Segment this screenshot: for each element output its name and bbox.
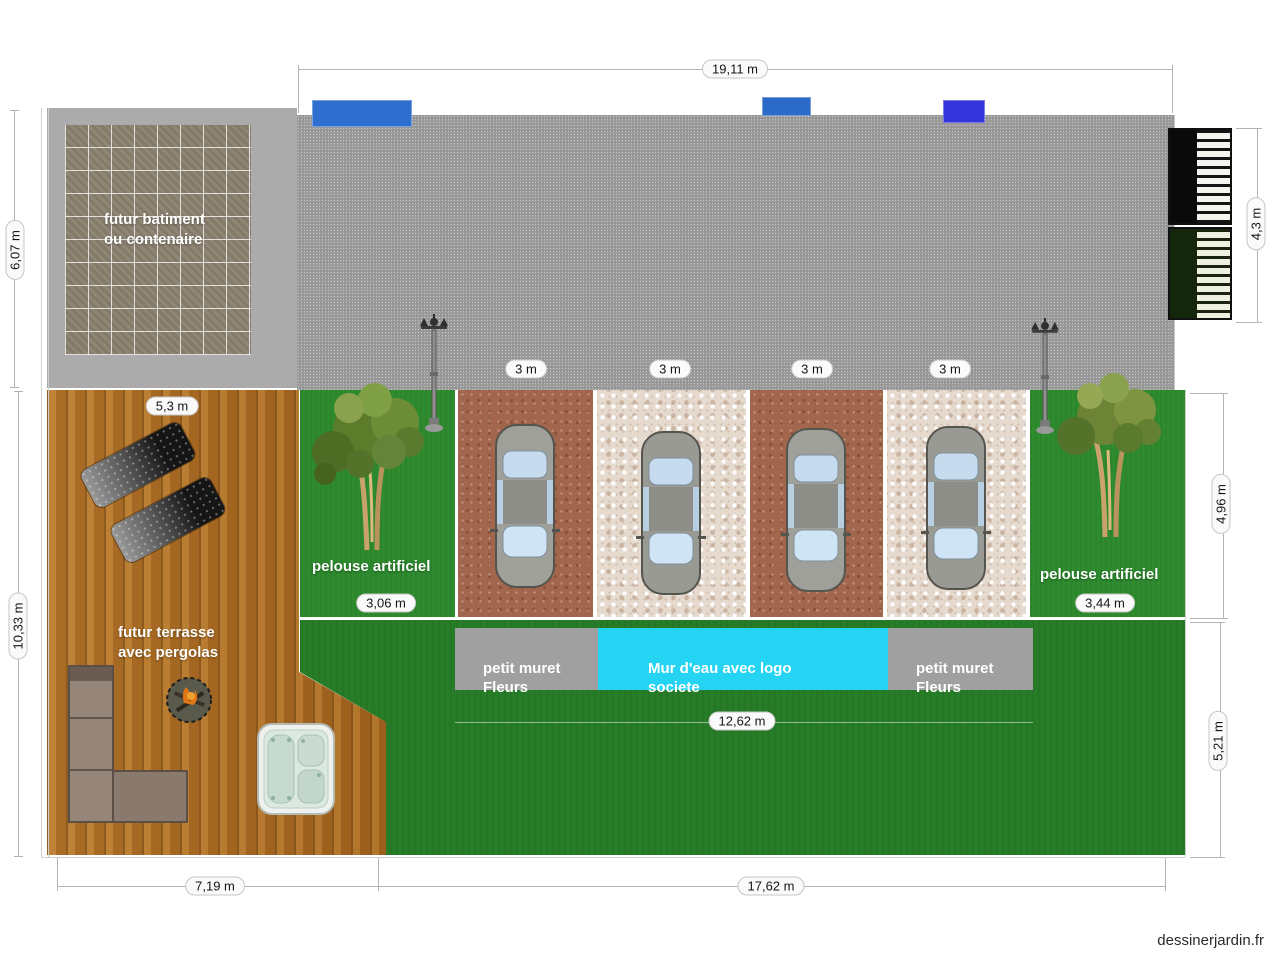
dim-left-upper-height: 6,07 m: [6, 220, 25, 280]
car-4[interactable]: [921, 423, 991, 593]
street-lamp-left[interactable]: [419, 314, 449, 434]
blue-panel-1[interactable]: [312, 100, 412, 127]
dim-left-lower-height: 10,33 m: [9, 593, 28, 660]
dim-spot-2: 3 m: [649, 360, 691, 379]
flower-wall-left-label: petit muret Fleurs: [455, 647, 598, 698]
dim-bottom-left-width: 7,19 m: [185, 877, 245, 896]
flower-wall-left[interactable]: petit muret Fleurs: [455, 628, 598, 690]
sofa-corner-vertical[interactable]: [68, 665, 114, 823]
dim-spot-4: 3 m: [929, 360, 971, 379]
lawn-right-label: pelouse artificiel: [1040, 565, 1158, 585]
dim-lawn-right-width: 3,44 m: [1075, 594, 1135, 613]
sofa-corner-chaise[interactable]: [112, 770, 188, 823]
dim-spot-3: 3 m: [791, 360, 833, 379]
water-wall[interactable]: Mur d'eau avec logo societe: [598, 628, 888, 690]
blue-panel-2[interactable]: [762, 97, 811, 116]
blue-panel-3[interactable]: [943, 100, 985, 123]
gate-upper-slats: [1197, 130, 1230, 223]
gate-upper[interactable]: [1168, 128, 1232, 225]
dim-deck-width: 5,3 m: [146, 397, 199, 416]
street-lamp-right[interactable]: [1030, 318, 1060, 436]
boundary-bottom: [41, 857, 1185, 858]
flower-wall-right-label: petit muret Fleurs: [888, 647, 1033, 698]
fire-pit[interactable]: [164, 675, 214, 725]
dim-parking-depth: 4,96 m: [1212, 474, 1231, 534]
terrace-label: futur terrasse avec pergolas: [118, 623, 218, 662]
boundary-right: [1185, 390, 1186, 857]
car-2[interactable]: [636, 428, 706, 598]
dim-spot-1: 3 m: [505, 360, 547, 379]
flower-wall-right[interactable]: petit muret Fleurs: [888, 628, 1033, 690]
car-1[interactable]: [490, 421, 560, 591]
watermark: dessinerjardin.fr: [1157, 932, 1264, 949]
future-building-label: futur batiment ou contenaire: [104, 210, 205, 249]
gate-upper-panel: [1170, 130, 1197, 223]
gate-lower-panel: [1170, 229, 1197, 318]
hot-tub[interactable]: [257, 723, 335, 815]
lawn-left-label: pelouse artificiel: [312, 557, 430, 577]
boundary-left2: [48, 108, 49, 857]
dim-top-width: 19,11 m: [702, 60, 768, 79]
dim-gate-height: 4,3 m: [1247, 198, 1266, 251]
dim-lawn-depth: 5,21 m: [1209, 711, 1228, 771]
tree-right[interactable]: [1050, 372, 1175, 542]
dim-bottom-right-width: 17,62 m: [738, 877, 805, 896]
car-3[interactable]: [781, 425, 851, 595]
dim-lawn-left-width: 3,06 m: [356, 594, 416, 613]
gate-lower-slats: [1197, 229, 1230, 318]
deck-seam-line: [0, 0, 251, 1]
garden-plan-canvas: futur batiment ou contenaire futur terra…: [0, 0, 1280, 960]
dim-water-wall-width: 12,62 m: [709, 712, 776, 731]
gate-lower[interactable]: [1168, 227, 1232, 320]
water-wall-label: Mur d'eau avec logo societe: [598, 647, 888, 698]
boundary-left: [41, 108, 42, 857]
